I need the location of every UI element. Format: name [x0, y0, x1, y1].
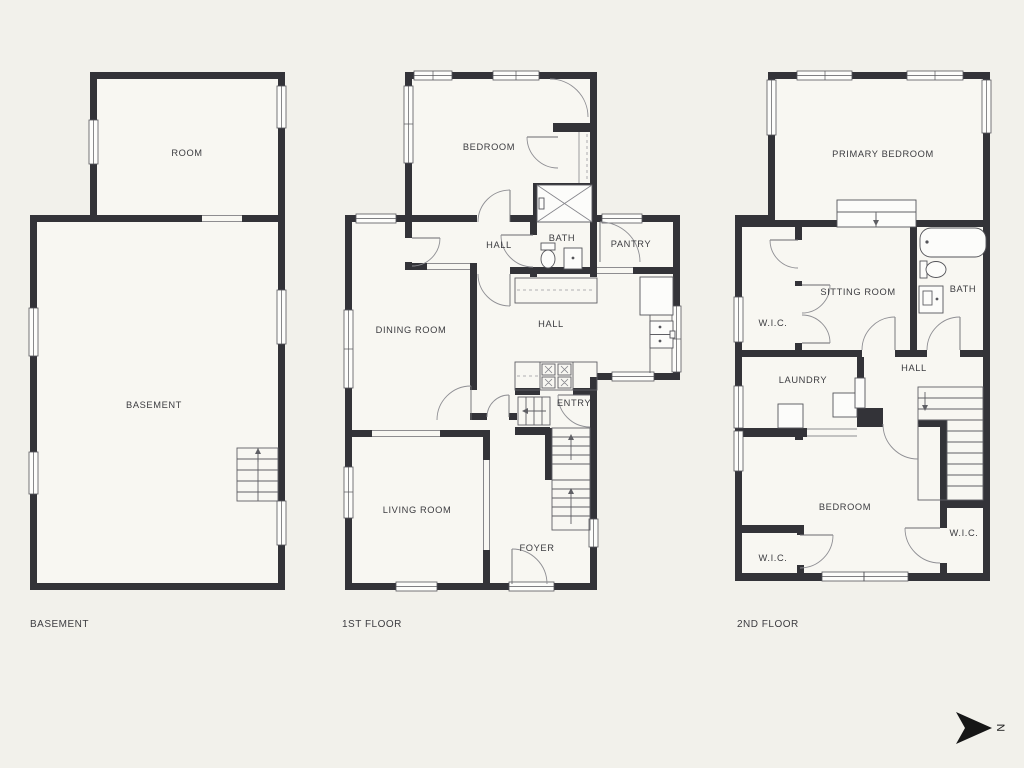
bath2-sink-icon	[919, 286, 943, 313]
room-label-foyer: FOYER	[519, 543, 554, 553]
room-label-pantry: PANTRY	[611, 239, 651, 249]
bathtub-icon	[920, 228, 986, 257]
caption-first-floor: 1ST FLOOR	[342, 619, 402, 630]
room-label-hall1: HALL	[538, 319, 564, 329]
primary-closet	[837, 200, 916, 227]
room-label-bath1: BATH	[549, 233, 576, 243]
kitchen-sink-icon	[650, 321, 675, 348]
first-floor-plan: BEDROOM HALL BATH PANTRY DINING ROOM HAL…	[344, 71, 681, 591]
room-label-hall-upper: HALL	[486, 240, 512, 250]
room-label-wic-left: W.I.C.	[759, 553, 788, 563]
north-arrow-icon: N	[956, 712, 1006, 744]
room-label-entry: ENTRY	[557, 398, 591, 408]
basement-plan: ROOM BASEMENT	[29, 72, 286, 590]
room-label-wic-right: W.I.C.	[950, 528, 979, 538]
room-label-living: LIVING ROOM	[383, 505, 452, 515]
room-label-bath2: BATH	[950, 284, 977, 294]
second-floor-plan: PRIMARY BEDROOM W.I.C. SITTING ROOM BATH…	[734, 71, 991, 581]
room-label-laundry: LAUNDRY	[779, 375, 827, 385]
room-label-basement-room: ROOM	[171, 148, 202, 158]
room-label-wic-upper: W.I.C.	[759, 318, 788, 328]
bath-sink-icon	[564, 248, 582, 269]
room-label-dining: DINING ROOM	[376, 325, 447, 335]
shower	[537, 185, 592, 222]
toilet2-icon	[920, 261, 946, 278]
room-label-hall2: HALL	[901, 363, 927, 373]
north-label: N	[994, 724, 1006, 732]
caption-basement: BASEMENT	[30, 619, 89, 630]
toilet-icon	[541, 243, 555, 268]
room-label-bedroom2: BEDROOM	[819, 502, 871, 512]
room-label-bedroom1: BEDROOM	[463, 142, 515, 152]
room-label-primary-bedroom: PRIMARY BEDROOM	[832, 149, 934, 159]
caption-second-floor: 2ND FLOOR	[737, 619, 799, 630]
room-label-sitting: SITTING ROOM	[820, 287, 895, 297]
floor-plan-canvas: ROOM BASEMENT	[0, 0, 1024, 768]
room-label-basement-main: BASEMENT	[126, 400, 182, 410]
